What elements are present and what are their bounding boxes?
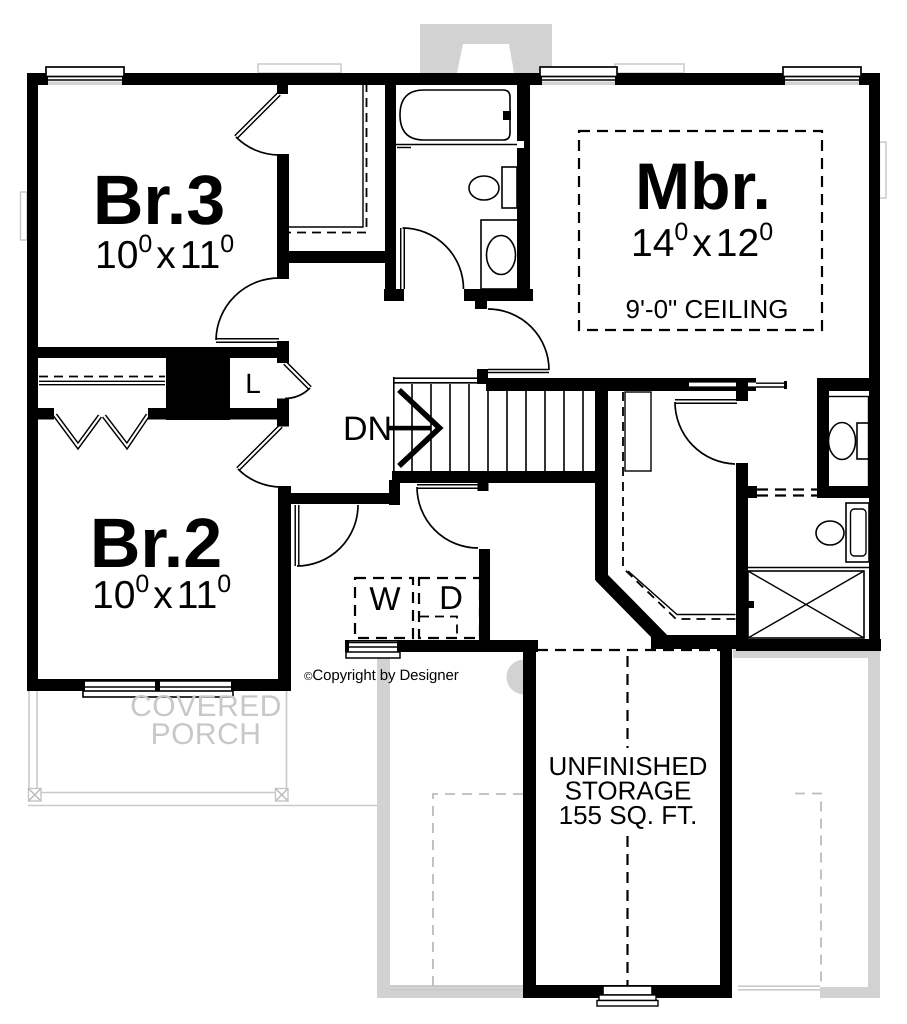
svg-text:Br.2: Br.2 bbox=[90, 504, 222, 582]
svg-text:Br.3: Br.3 bbox=[93, 161, 225, 239]
svg-text:PORCH: PORCH bbox=[151, 718, 262, 751]
svg-text:100x110: 100x110 bbox=[92, 570, 231, 617]
svg-text:DN: DN bbox=[343, 410, 392, 448]
svg-text:9'-0" CEILING: 9'-0" CEILING bbox=[625, 294, 788, 324]
svg-text:D: D bbox=[439, 579, 463, 616]
svg-text:140x120: 140x120 bbox=[631, 218, 773, 265]
svg-text:155 SQ. FT.: 155 SQ. FT. bbox=[559, 800, 698, 830]
svg-text:L: L bbox=[245, 368, 261, 399]
svg-text:©Copyright by Designer: ©Copyright by Designer bbox=[304, 667, 459, 684]
svg-text:Mbr.: Mbr. bbox=[635, 149, 771, 223]
svg-text:W: W bbox=[369, 580, 401, 617]
svg-text:100x110: 100x110 bbox=[95, 230, 234, 277]
